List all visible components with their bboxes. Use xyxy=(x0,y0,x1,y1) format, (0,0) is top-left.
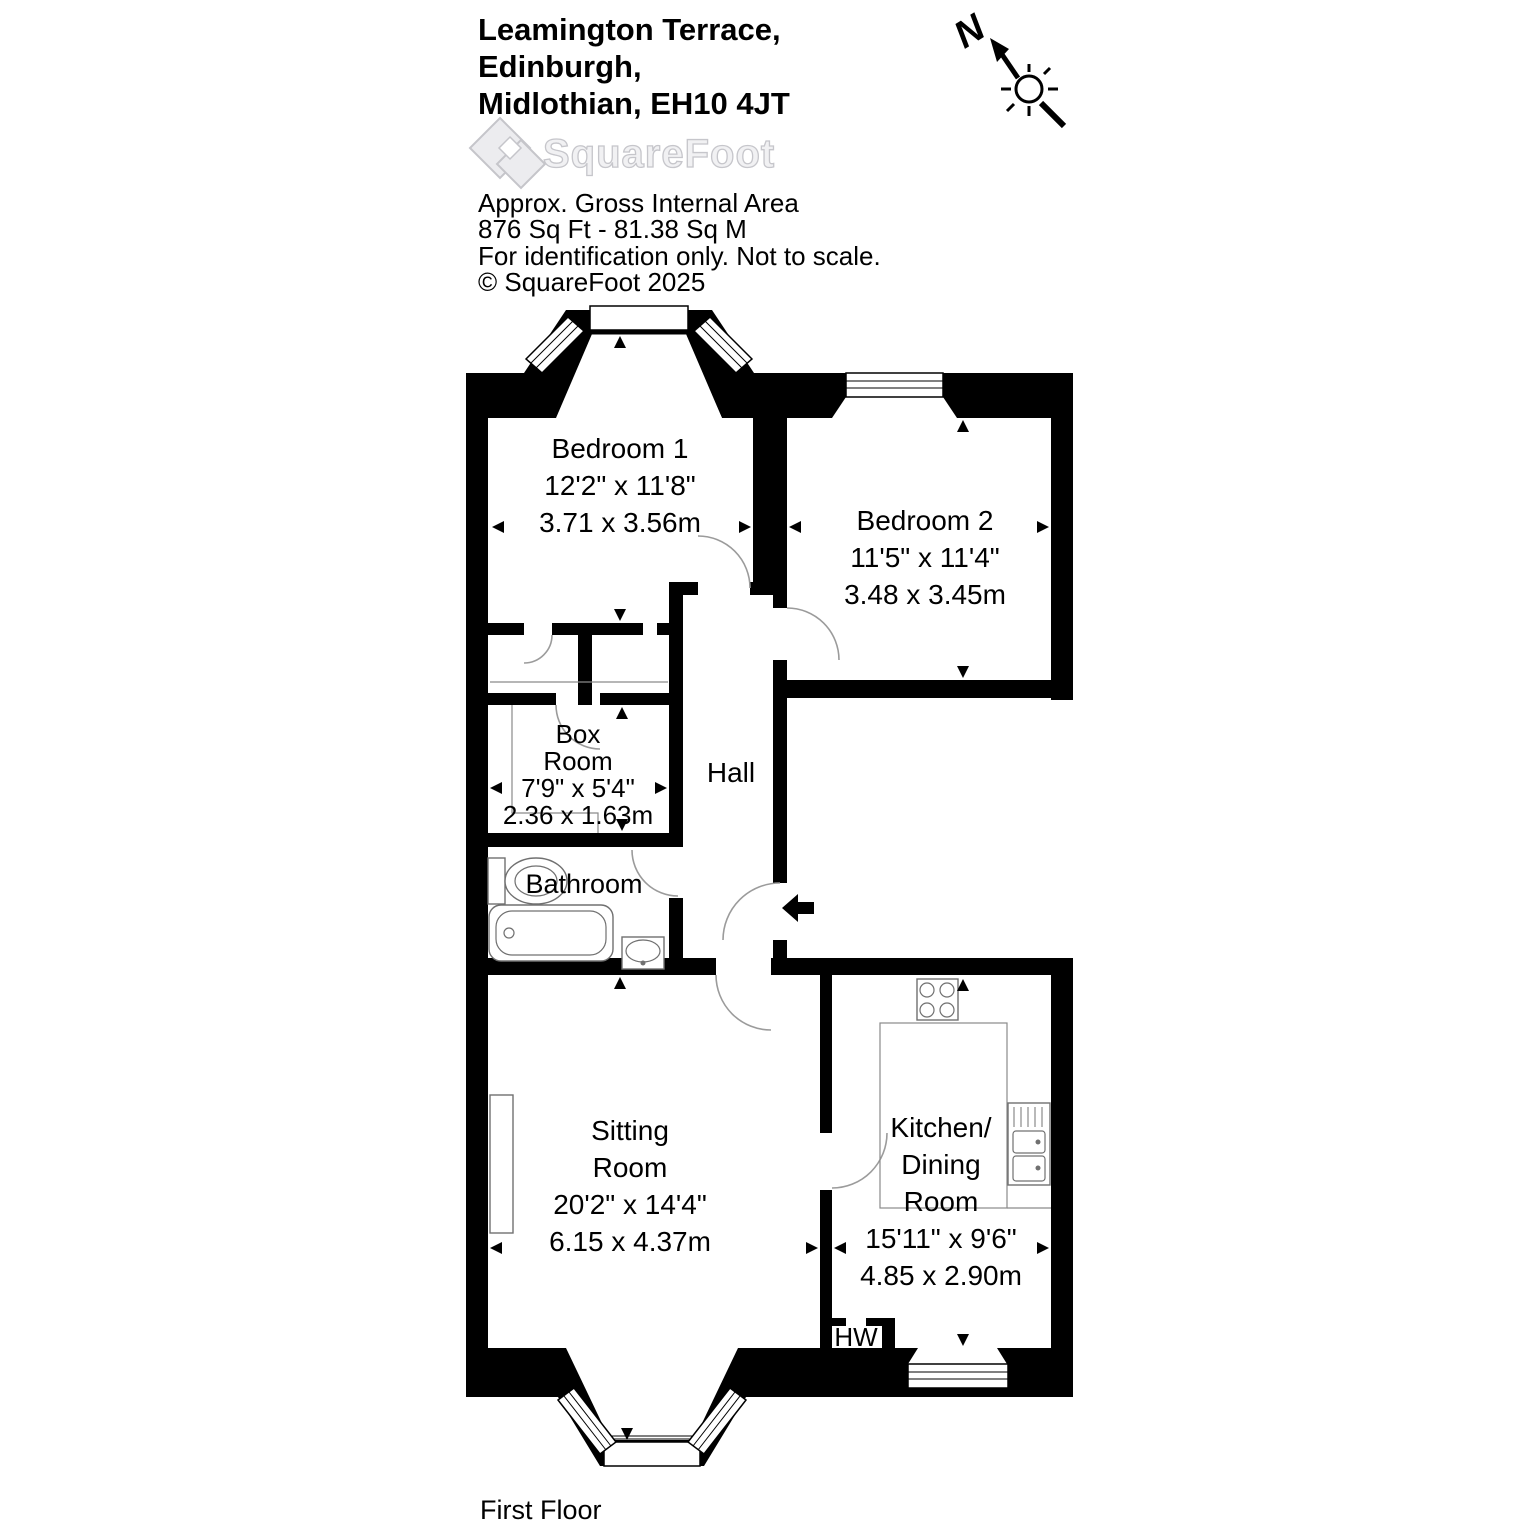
bedroom2-dims-m: 3.48 x 3.45m xyxy=(844,579,1006,610)
window-reveal-bedroom2 xyxy=(832,397,957,418)
bedroom1-dims-m: 3.71 x 3.56m xyxy=(539,507,701,538)
box-room-label-1: Box xyxy=(556,719,601,749)
sitting-room-label-2: Room xyxy=(593,1152,668,1183)
kitchen-dims-ft: 15'11" x 9'6" xyxy=(865,1223,1016,1254)
sitting-room-press xyxy=(490,1095,513,1233)
kitchen-label-3: Room xyxy=(904,1186,979,1217)
copyright: © SquareFoot 2025 xyxy=(478,267,705,297)
box-room-dims-m: 2.36 x 1.63m xyxy=(503,800,653,830)
address-line-1: Leamington Terrace, xyxy=(478,12,781,47)
kitchen-label-1: Kitchen/ xyxy=(890,1112,991,1143)
bedroom2-dims-ft: 11'5" x 11'4" xyxy=(850,542,999,573)
bathroom-label: Bathroom xyxy=(525,869,642,899)
floorplan-page: Leamington Terrace, Edinburgh, Midlothia… xyxy=(0,0,1536,1536)
bedroom2-label: Bedroom 2 xyxy=(857,505,994,536)
window-kitchen xyxy=(908,1364,1008,1388)
address-line-3: Midlothian, EH10 4JT xyxy=(478,86,790,121)
window-bedroom2 xyxy=(846,373,943,397)
box-room-dims-ft: 7'9" x 5'4" xyxy=(521,773,635,803)
kitchen-dims-m: 4.85 x 2.90m xyxy=(860,1260,1022,1291)
kitchen-sink-icon xyxy=(1008,1103,1050,1185)
kitchen-label-2: Dining xyxy=(901,1149,980,1180)
bay-window-center-sitting xyxy=(604,1442,700,1466)
hall-label: Hall xyxy=(707,757,755,788)
sitting-room-dims-ft: 20'2" x 14'4" xyxy=(553,1189,707,1220)
bedroom1-dims-ft: 12'2" x 11'8" xyxy=(544,470,695,501)
basin-icon xyxy=(622,937,664,969)
box-room-label-2: Room xyxy=(543,746,612,776)
area-values: 876 Sq Ft - 81.38 Sq M xyxy=(478,214,747,244)
sitting-room-dims-m: 6.15 x 4.37m xyxy=(549,1226,711,1257)
squarefoot-logo-text: SquareFoot xyxy=(543,132,775,176)
bathtub-icon xyxy=(489,905,613,961)
bedroom1-label: Bedroom 1 xyxy=(552,433,689,464)
address-line-2: Edinburgh, xyxy=(478,49,642,84)
page-background xyxy=(0,0,1536,1536)
bay-window-center-bedroom1 xyxy=(590,306,688,330)
floor-label: First Floor xyxy=(480,1495,602,1525)
hot-water-label: HW xyxy=(834,1322,878,1352)
hob-icon xyxy=(917,979,958,1020)
sitting-room-label-1: Sitting xyxy=(591,1115,669,1146)
window-reveal-kitchen xyxy=(908,1348,1007,1364)
